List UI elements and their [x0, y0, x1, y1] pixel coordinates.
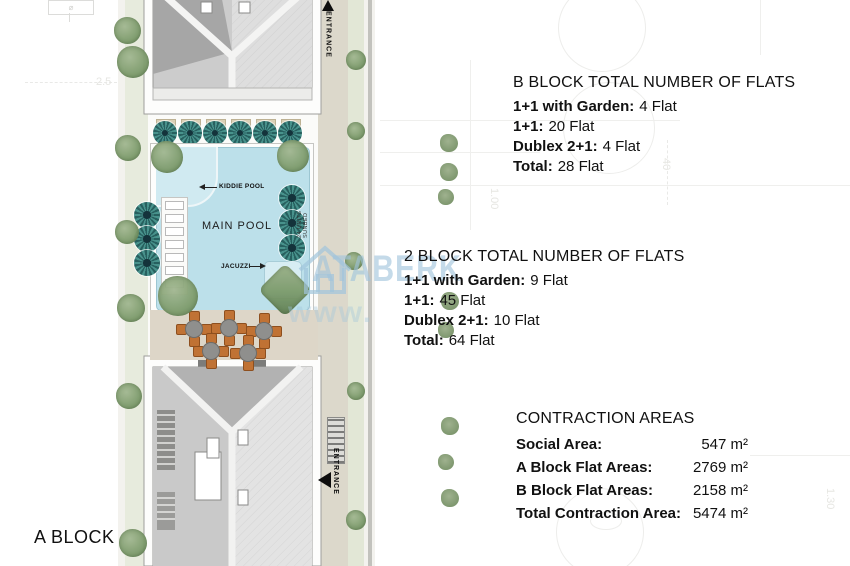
flat-row: 1+1:20 Flat [513, 117, 795, 137]
tree-icon [119, 529, 147, 557]
parasol-icon [134, 250, 160, 276]
tree-icon [115, 135, 141, 161]
parasol-icon [279, 235, 305, 261]
sunbed-count-label: 24 UNITS SUNBED [297, 186, 309, 238]
sunbed [165, 253, 184, 262]
parasol-icon [253, 121, 277, 145]
sunbed [165, 240, 184, 249]
flat-row: Total:64 Flat [404, 331, 685, 351]
kiddie-pool-label: KIDDIE POOL [219, 183, 265, 190]
flat-row: 1+1 with Garden:9 Flat [404, 271, 685, 291]
jacuzzi-arrow-icon [260, 263, 266, 269]
tree-icon [347, 122, 365, 140]
table-group [231, 336, 263, 368]
sunbed [165, 266, 184, 275]
survey-mark: 1.30 [824, 488, 836, 509]
tree-icon [346, 510, 366, 530]
survey-line [750, 455, 850, 456]
jacuzzi-leader [250, 266, 260, 267]
entrance-bottom-label: ENTRANCE [332, 448, 339, 495]
block2-flats-summary: 2 BLOCK TOTAL NUMBER OF FLATS 1+1 with G… [404, 248, 685, 351]
tree-icon [277, 140, 309, 172]
b-block-building [143, 0, 322, 116]
tree-icon [117, 46, 149, 78]
bush-icon [438, 189, 454, 205]
b-block-flats-title: B BLOCK TOTAL NUMBER OF FLATS [513, 74, 795, 92]
a-block-label: A BLOCK [34, 527, 115, 548]
parasol-icon [134, 202, 160, 228]
contraction-areas-summary: CONTRACTION AREAS Social Area:547 m² A B… [516, 410, 748, 525]
entrance-top-label: ENTRANCE [325, 11, 332, 58]
area-row: Social Area:547 m² [516, 433, 748, 456]
tree-icon [114, 17, 141, 44]
flat-row: Dublex 2+1:4 Flat [513, 137, 795, 157]
entrance-arrow-icon [322, 0, 334, 11]
drawing-reference-symbol: ⌀ [48, 0, 94, 15]
drawing-reference-stem [69, 13, 70, 22]
road-edge [368, 0, 372, 566]
tree-icon [346, 50, 366, 70]
contraction-areas-title: CONTRACTION AREAS [516, 410, 748, 428]
tree-icon [117, 294, 145, 322]
main-pool-label: MAIN POOL [202, 220, 272, 232]
sunbed [165, 227, 184, 236]
table-icon [239, 344, 257, 362]
survey-circle [558, 0, 646, 72]
tree-icon [116, 383, 142, 409]
bush-icon [440, 163, 458, 181]
tree-icon [347, 382, 365, 400]
parasol-icon [203, 121, 227, 145]
survey-line [380, 185, 850, 186]
jacuzzi-label: JACUZZI [221, 263, 251, 270]
entrance-arrow-icon [318, 472, 331, 488]
table-group [194, 334, 226, 366]
parasol-icon [228, 121, 252, 145]
survey-mark: 2.5 [96, 76, 111, 88]
tree-icon [115, 220, 139, 244]
bush-icon [440, 134, 458, 152]
tree-icon [158, 276, 198, 316]
sunbed [165, 214, 184, 223]
site-plan-page: 2.5 1.00 40 1.30 ⌀ [0, 0, 850, 566]
tree-icon [345, 252, 363, 270]
flat-row: 1+1:45 Flat [404, 291, 685, 311]
bush-icon [438, 454, 454, 470]
flat-row: Total:28 Flat [513, 157, 795, 177]
kiddie-pool-leader [205, 187, 217, 188]
area-row: B Block Flat Areas:2158 m² [516, 479, 748, 502]
area-row: A Block Flat Areas:2769 m² [516, 456, 748, 479]
sunbed [165, 201, 184, 210]
right-planting-strip [348, 0, 364, 566]
block2-flats-title: 2 BLOCK TOTAL NUMBER OF FLATS [404, 248, 685, 266]
tree-icon [151, 141, 183, 173]
flat-row: 1+1 with Garden:4 Flat [513, 97, 795, 117]
survey-line [760, 0, 761, 55]
flat-row: Dublex 2+1:10 Flat [404, 311, 685, 331]
entrance-top-marker: ENTRANCE [322, 0, 334, 58]
bush-icon [441, 489, 459, 507]
area-row: Total Contraction Area:5474 m² [516, 502, 748, 525]
a-block-building [143, 352, 322, 566]
b-block-flats-summary: B BLOCK TOTAL NUMBER OF FLATS 1+1 with G… [513, 74, 795, 177]
survey-mark: 1.00 [488, 188, 500, 209]
bush-icon [441, 417, 459, 435]
survey-line [470, 60, 471, 230]
parasol-icon [178, 121, 202, 145]
table-icon [202, 342, 220, 360]
